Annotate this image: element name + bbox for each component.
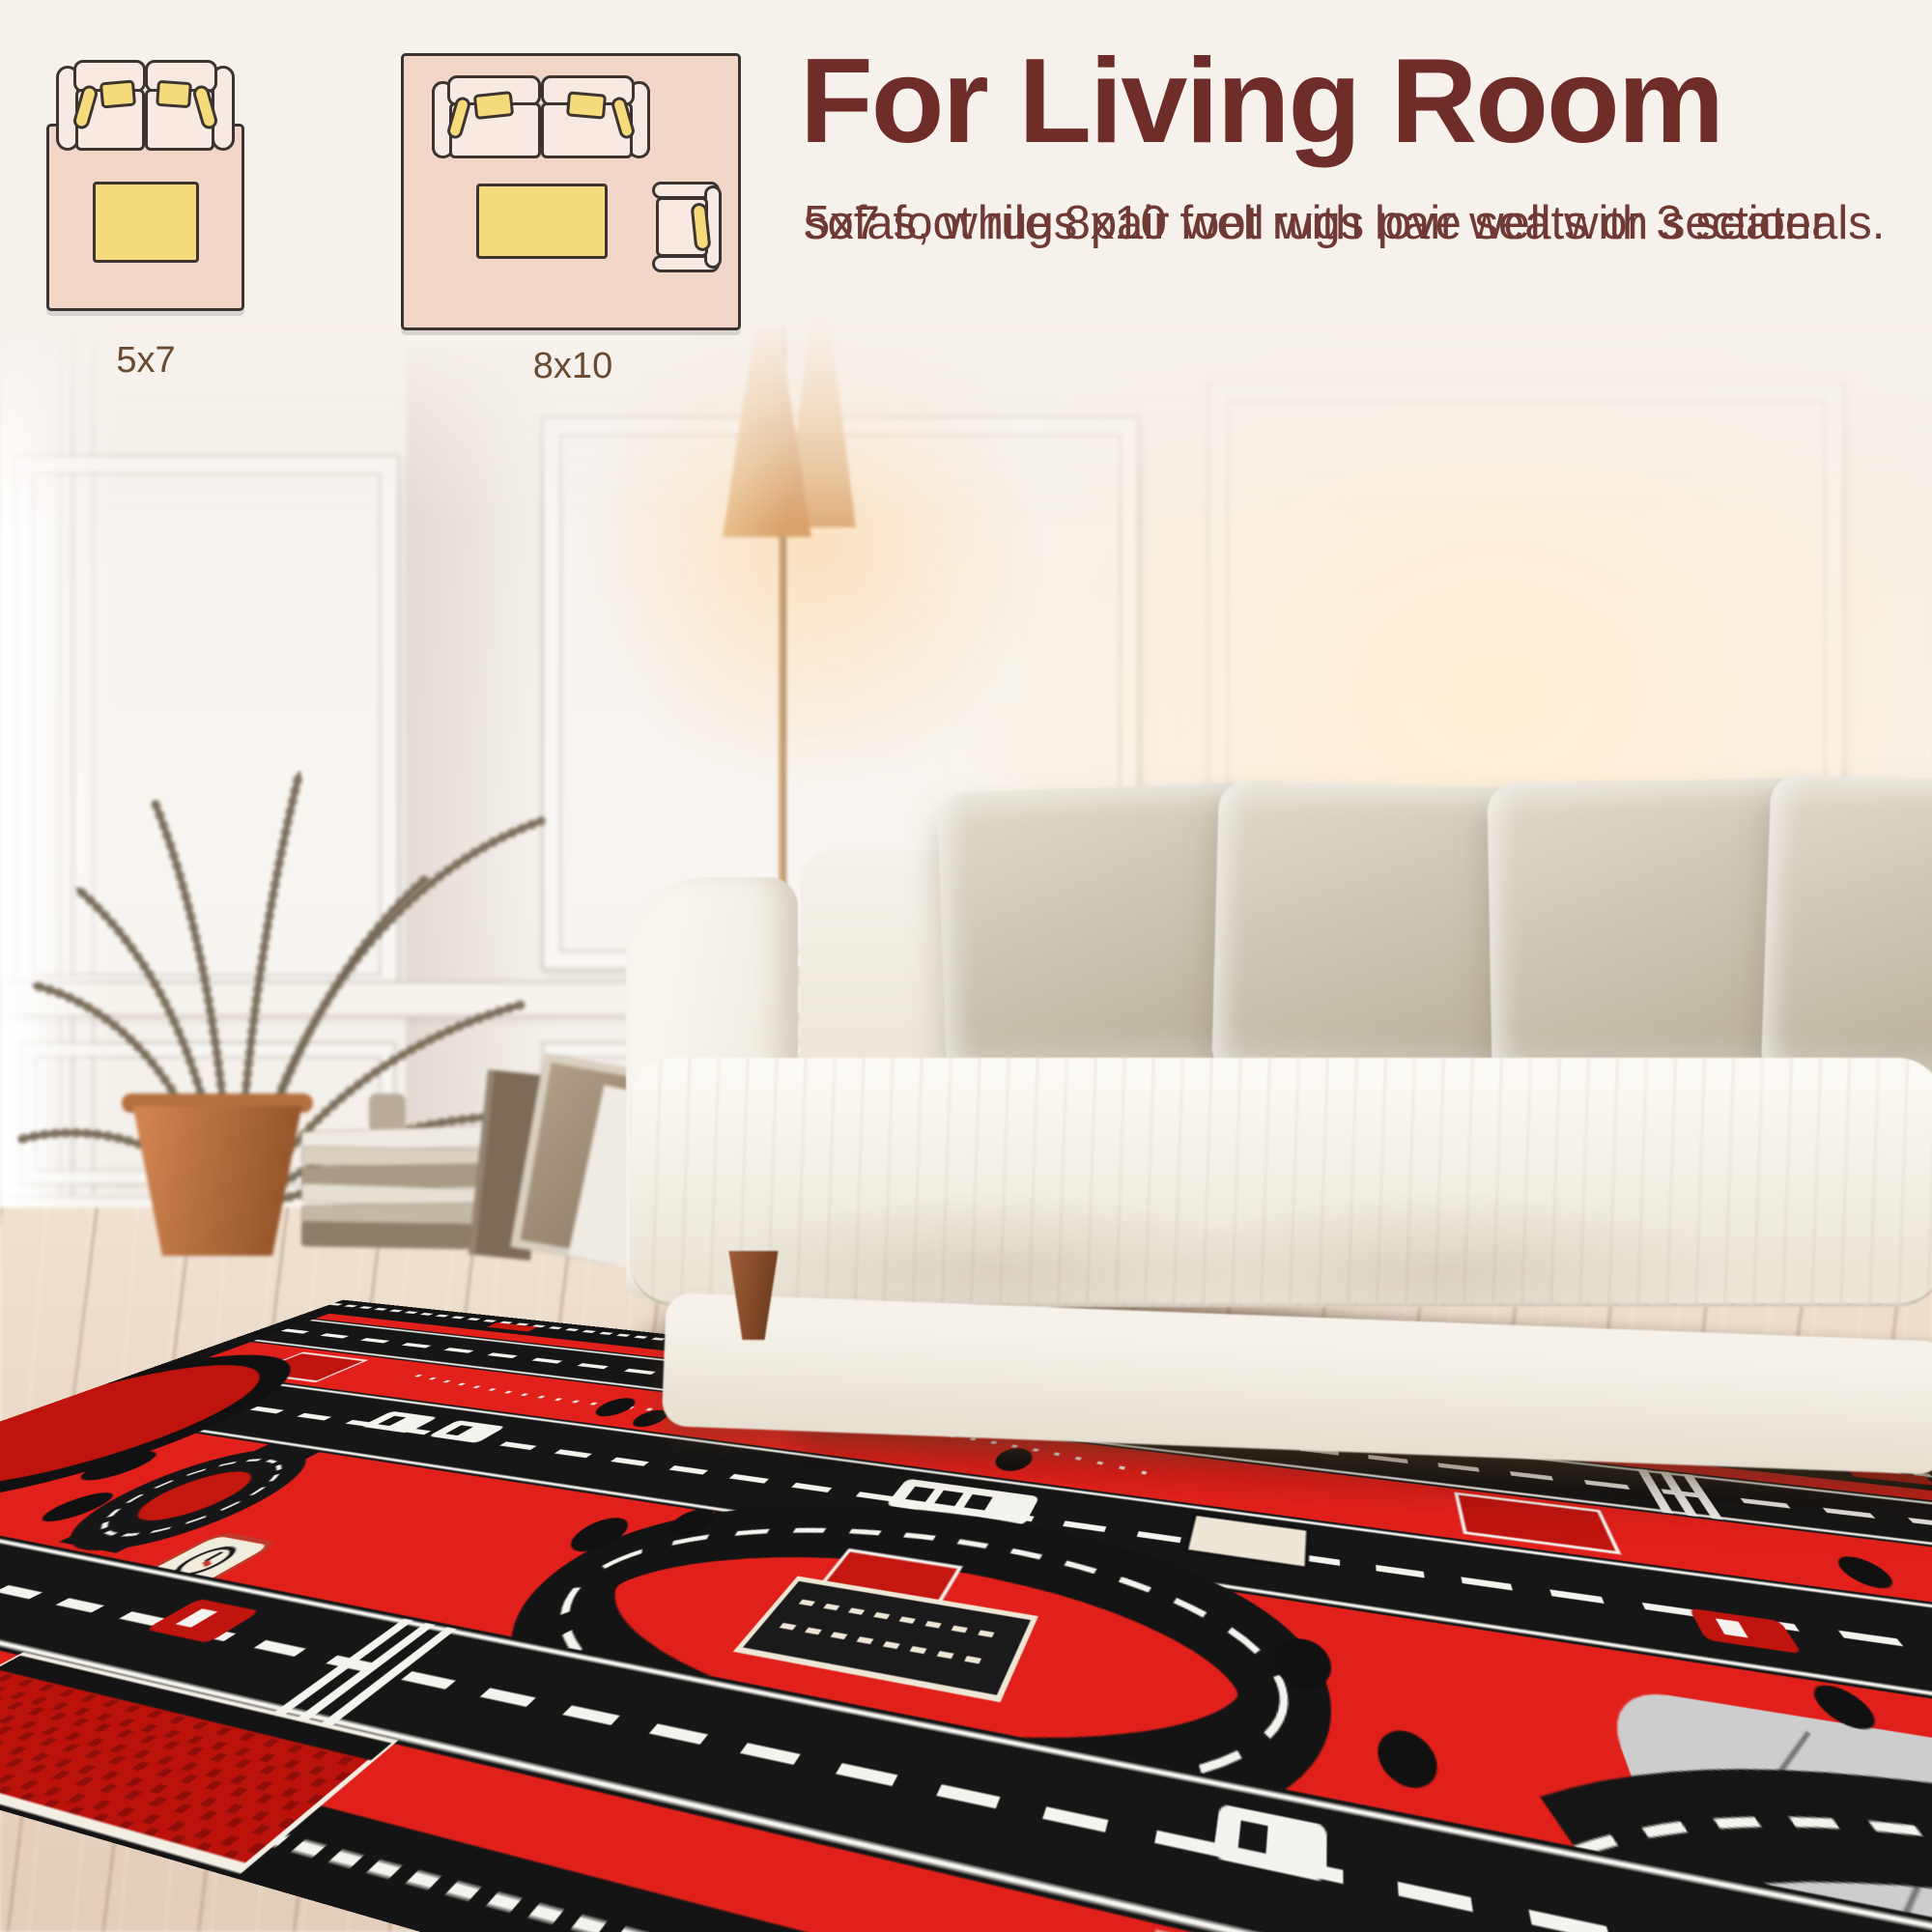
product-image: For Living Room 5x7 foot rugs pair well … bbox=[0, 0, 1932, 1932]
rug-size-diagram-8x10: 8x10 bbox=[401, 48, 745, 382]
pillow-icon bbox=[566, 91, 607, 119]
sofa-base bbox=[662, 1293, 1932, 1475]
pillow-icon bbox=[156, 80, 192, 108]
sofa-pillow bbox=[1761, 774, 1932, 1089]
armchair-top-icon bbox=[650, 182, 725, 272]
coffee-table-icon bbox=[93, 182, 199, 263]
page-title: For Living Room bbox=[800, 33, 1920, 170]
sofa-top-icon bbox=[56, 60, 235, 153]
pillow-icon bbox=[473, 91, 514, 120]
size-label: 5x7 bbox=[46, 340, 245, 382]
rug-size-diagram-5x7: 5x7 bbox=[46, 58, 245, 377]
size-label: 8x10 bbox=[401, 346, 745, 387]
sofa bbox=[0, 290, 1932, 1932]
header: For Living Room 5x7 foot rugs pair well … bbox=[0, 0, 1932, 454]
living-room-photo bbox=[0, 290, 1932, 1932]
sofa-top-icon bbox=[432, 75, 650, 160]
sofa-seat-cushion bbox=[630, 1058, 1932, 1307]
description-line: sofas, while 8x10 foot rugs pair well wi… bbox=[804, 191, 1885, 257]
pillow-icon bbox=[99, 79, 136, 108]
coffee-table-icon bbox=[476, 184, 608, 259]
